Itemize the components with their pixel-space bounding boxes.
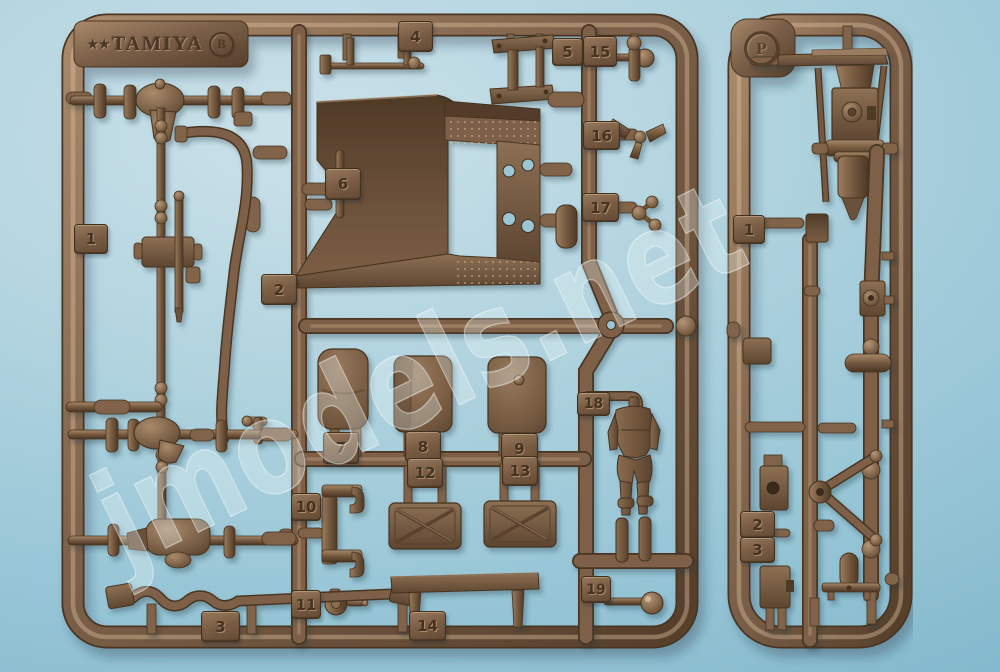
transfer-case-part [142, 237, 194, 267]
part-number-tag-b-7: 7 [323, 432, 359, 464]
windshield-frame-part [490, 34, 555, 104]
stowage-box-part-3 [760, 566, 794, 630]
floor-pan-hole [522, 220, 535, 233]
tamiya-stars-icon: ★★ [86, 35, 109, 53]
runner-junction-ring [598, 312, 624, 338]
part-number-tag-p-1: 1 [733, 215, 765, 244]
floor-pan-hole [503, 165, 515, 177]
part-number-tag-b-10: 10 [291, 493, 321, 521]
part-number-tag-b-1: 1 [74, 224, 108, 254]
part-number-tag-b-16: 16 [583, 121, 620, 150]
part-number-tag-b-4: 4 [398, 21, 433, 52]
part-number-tag-b-3: 3 [201, 611, 240, 642]
sprue-artwork [0, 0, 1000, 672]
brand-plate: ★★ TAMIYA B [76, 23, 244, 65]
part-number-tag-b-2: 2 [261, 274, 297, 305]
part-number-tag-b-11: 11 [291, 590, 321, 619]
runner-horizontal-mid [306, 316, 696, 336]
sprue-letter-b: B [209, 32, 234, 57]
driveshaft-part [134, 108, 260, 538]
part-number-tag-b-15: 15 [583, 36, 617, 67]
rear-axle-part [68, 519, 298, 568]
brand-name: TAMIYA [112, 33, 204, 56]
chassis-bar-part [862, 152, 894, 624]
sprue-photo: 1 2 3 4 5 15 6 16 17 7 8 9 12 13 10 11 1… [0, 0, 1000, 672]
part-number-tag-b-6: 6 [325, 168, 361, 200]
sprue-ball-joint [676, 316, 696, 336]
pivot-block-part [860, 281, 894, 316]
floor-pan-hole [503, 213, 516, 226]
post-part [627, 34, 641, 81]
cylinder-part [556, 205, 577, 248]
part-number-tag-b-19: 19 [581, 576, 611, 603]
part-number-tag-b-12: 12 [407, 458, 443, 488]
part-number-tag-p-3: 3 [740, 537, 775, 563]
part-number-tag-b-5: 5 [552, 38, 583, 66]
part-number-tag-b-17: 17 [582, 193, 619, 222]
sprue-letter-p: P [744, 31, 779, 66]
floor-pan-hole [522, 159, 534, 171]
gear-lever-part-19 [604, 592, 663, 614]
part-number-tag-b-14: 14 [409, 611, 446, 641]
part-number-tag-b-13: 13 [502, 456, 538, 486]
figure-part-18 [586, 396, 660, 562]
part-number-tag-b-18: 18 [577, 392, 610, 416]
link-bar-part [66, 400, 162, 414]
part-number-tag-p-2: 2 [740, 511, 775, 538]
